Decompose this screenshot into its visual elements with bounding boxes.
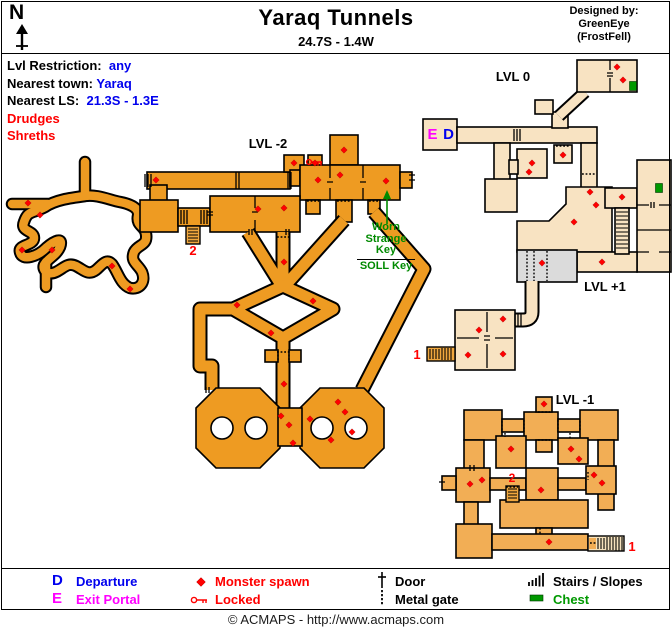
legend-chest-label: Chest [553, 591, 589, 608]
lvl-restriction-line: Lvl Restriction: any [7, 57, 227, 75]
header-divider [1, 53, 670, 54]
legend-departure-symbol: D [52, 572, 63, 589]
designer-credit: Designed by: GreenEye (FrostFell) [544, 5, 664, 44]
lvl-restriction-value: any [109, 58, 131, 73]
legend-monster-spawn-label: Monster spawn [215, 573, 310, 590]
legend-metal-gate-label: Metal gate [395, 591, 459, 608]
monster-name: Drudges [7, 110, 227, 128]
nearest-town-value: Yaraq [96, 76, 131, 91]
departure-marker: D [441, 126, 456, 143]
legend-departure-label: Departure [76, 573, 137, 590]
key-note: Worn Strange Key SOLL Key [346, 222, 426, 272]
stairs-2-marker-lvl-minus2: 2 [185, 243, 201, 258]
exit-portal-marker: E [425, 126, 440, 143]
map-coordinates: 24.7S - 1.4W [136, 34, 536, 49]
legend-locked-icon [190, 594, 212, 606]
level-label-minus1: LVL -1 [538, 392, 612, 407]
key-note-alt: SOLL Key [346, 261, 426, 273]
nearest-ls-line: Nearest LS: 21.3S - 1.3E [7, 92, 227, 110]
compass-n-label: N [9, 2, 41, 23]
nearest-town-line: Nearest town: Yaraq [7, 75, 227, 93]
stairs-1-marker-lvl-plus1: 1 [410, 347, 424, 362]
key-note-line: Worn [346, 222, 426, 234]
legend-divider [1, 568, 670, 569]
level-label-plus1: LVL +1 [568, 279, 642, 294]
legend-stairs-label: Stairs / Slopes [553, 573, 643, 590]
level-label-zero: LVL 0 [478, 69, 548, 84]
legend-chest-icon [529, 593, 545, 603]
monster-name: Shreths [7, 127, 227, 145]
nearest-town-label: Nearest town: [7, 76, 93, 91]
legend-locked-label: Locked [215, 591, 261, 608]
page-title: Yaraq Tunnels [136, 5, 536, 31]
stairs-2-marker-lvl-minus1: 2 [504, 471, 520, 485]
legend-door-label: Door [395, 573, 425, 590]
legend-monster-spawn-icon [195, 576, 207, 588]
compass-north-arrow-icon [9, 23, 35, 53]
level-label-minus2: LVL -2 [230, 136, 306, 151]
designer-world: (FrostFell) [544, 31, 664, 44]
key-note-line: Key [346, 245, 426, 257]
legend-exit-symbol: E [52, 590, 62, 607]
stairs-1-marker-lvl-minus1: 1 [624, 539, 640, 554]
legend-metal-gate-icon [376, 589, 388, 607]
designer-name: GreenEye [544, 18, 664, 31]
acmaps-dungeon-map-page: N Yaraq Tunnels 24.7S - 1.4W Designed by… [0, 0, 672, 634]
legend-door-icon [376, 571, 388, 589]
lvl-restriction-label: Lvl Restriction: [7, 58, 102, 73]
copyright-footer: © ACMAPS - http://www.acmaps.com [0, 612, 672, 627]
legend-stairs-icon [527, 571, 547, 588]
info-block: Lvl Restriction: any Nearest town: Yaraq… [7, 57, 227, 145]
designed-by-label: Designed by: [544, 5, 664, 18]
nearest-ls-value: 21.3S - 1.3E [86, 93, 158, 108]
nearest-ls-label: Nearest LS: [7, 93, 79, 108]
title-block: Yaraq Tunnels 24.7S - 1.4W [136, 5, 536, 49]
compass: N [9, 2, 41, 58]
legend-exit-label: Exit Portal [76, 591, 140, 608]
